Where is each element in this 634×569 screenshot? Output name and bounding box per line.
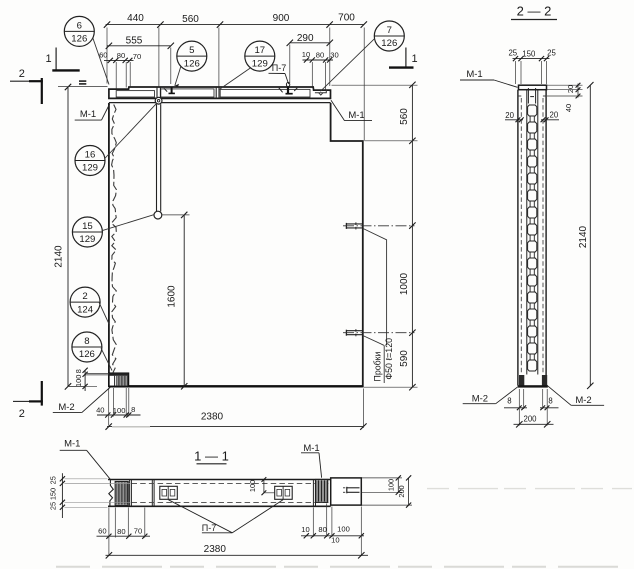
svg-text:1: 1 — [411, 53, 417, 65]
svg-text:126: 126 — [79, 349, 95, 360]
svg-text:80: 80 — [117, 51, 125, 60]
svg-text:10: 10 — [331, 535, 339, 544]
svg-text:100: 100 — [113, 406, 126, 415]
svg-text:124: 124 — [77, 304, 94, 315]
svg-text:590: 590 — [399, 350, 410, 367]
svg-text:80: 80 — [316, 51, 324, 60]
svg-text:2: 2 — [82, 291, 87, 302]
svg-text:80: 80 — [117, 527, 125, 536]
svg-text:129: 129 — [252, 58, 268, 69]
svg-text:150: 150 — [48, 488, 57, 500]
svg-text:560: 560 — [182, 14, 199, 25]
svg-text:2: 2 — [19, 408, 25, 420]
svg-text:2140: 2140 — [578, 225, 589, 248]
svg-text:25: 25 — [48, 476, 57, 484]
svg-text:8: 8 — [131, 405, 135, 414]
svg-text:М-1: М-1 — [80, 109, 96, 120]
svg-text:8: 8 — [74, 369, 83, 373]
svg-text:П-7: П-7 — [272, 63, 286, 73]
svg-text:555: 555 — [126, 36, 143, 47]
svg-text:М-1: М-1 — [466, 69, 482, 80]
svg-text:15: 15 — [82, 221, 93, 232]
svg-text:200: 200 — [523, 415, 537, 424]
svg-text:М-2: М-2 — [575, 395, 591, 406]
svg-text:1: 1 — [45, 53, 51, 65]
svg-text:М-2: М-2 — [472, 394, 488, 405]
svg-text:1600: 1600 — [167, 285, 178, 308]
svg-text:17: 17 — [254, 45, 265, 56]
svg-text:10: 10 — [302, 50, 310, 59]
svg-text:Пробки: Пробки — [373, 351, 383, 381]
svg-text:100: 100 — [337, 524, 350, 533]
svg-text:М-1: М-1 — [303, 443, 319, 454]
svg-text:290: 290 — [297, 33, 314, 44]
svg-text:2: 2 — [19, 68, 25, 80]
svg-text:25: 25 — [508, 49, 517, 58]
svg-text:1 — 1: 1 — 1 — [194, 449, 229, 464]
svg-text:20: 20 — [505, 111, 514, 120]
svg-text:440: 440 — [127, 13, 144, 24]
svg-text:7: 7 — [387, 25, 392, 36]
svg-text:40: 40 — [564, 104, 573, 112]
svg-text:129: 129 — [82, 163, 98, 174]
svg-text:М-1: М-1 — [348, 110, 364, 121]
svg-text:М-2: М-2 — [58, 402, 74, 413]
svg-text:2380: 2380 — [204, 544, 227, 555]
svg-text:70: 70 — [134, 527, 142, 536]
svg-text:25: 25 — [48, 502, 57, 510]
svg-text:30: 30 — [330, 51, 338, 60]
svg-text:700: 700 — [338, 13, 355, 24]
svg-text:100: 100 — [248, 480, 257, 492]
svg-text:126: 126 — [184, 58, 200, 69]
svg-text:2140: 2140 — [54, 245, 65, 268]
svg-text:200: 200 — [397, 485, 406, 497]
svg-text:5: 5 — [189, 45, 194, 56]
svg-text:8: 8 — [507, 397, 511, 406]
svg-text:10: 10 — [301, 525, 309, 534]
svg-text:25: 25 — [547, 49, 556, 58]
svg-text:126: 126 — [71, 34, 87, 45]
svg-text:100: 100 — [74, 375, 83, 387]
svg-text:900: 900 — [273, 13, 290, 24]
svg-text:20: 20 — [566, 85, 575, 93]
svg-text:129: 129 — [79, 234, 95, 245]
svg-text:126: 126 — [381, 38, 397, 49]
svg-text:100: 100 — [386, 479, 395, 491]
svg-text:6: 6 — [77, 20, 82, 31]
svg-text:2 — 2: 2 — 2 — [517, 4, 552, 19]
svg-text:П-7: П-7 — [202, 523, 216, 533]
svg-text:2380: 2380 — [201, 412, 224, 423]
svg-text:40: 40 — [96, 405, 104, 414]
svg-text:20: 20 — [550, 111, 559, 120]
svg-text:8: 8 — [548, 397, 552, 406]
svg-text:70: 70 — [133, 52, 141, 61]
svg-text:1000: 1000 — [399, 272, 410, 295]
svg-text:Ф50 ℓ=120: Ф50 ℓ=120 — [384, 338, 394, 380]
svg-text:150: 150 — [522, 49, 536, 58]
svg-text:560: 560 — [399, 108, 410, 125]
svg-text:16: 16 — [85, 150, 96, 161]
svg-text:60: 60 — [98, 526, 106, 535]
svg-text:8: 8 — [84, 336, 89, 347]
svg-text:80: 80 — [318, 525, 326, 534]
svg-text:М-1: М-1 — [64, 439, 80, 450]
